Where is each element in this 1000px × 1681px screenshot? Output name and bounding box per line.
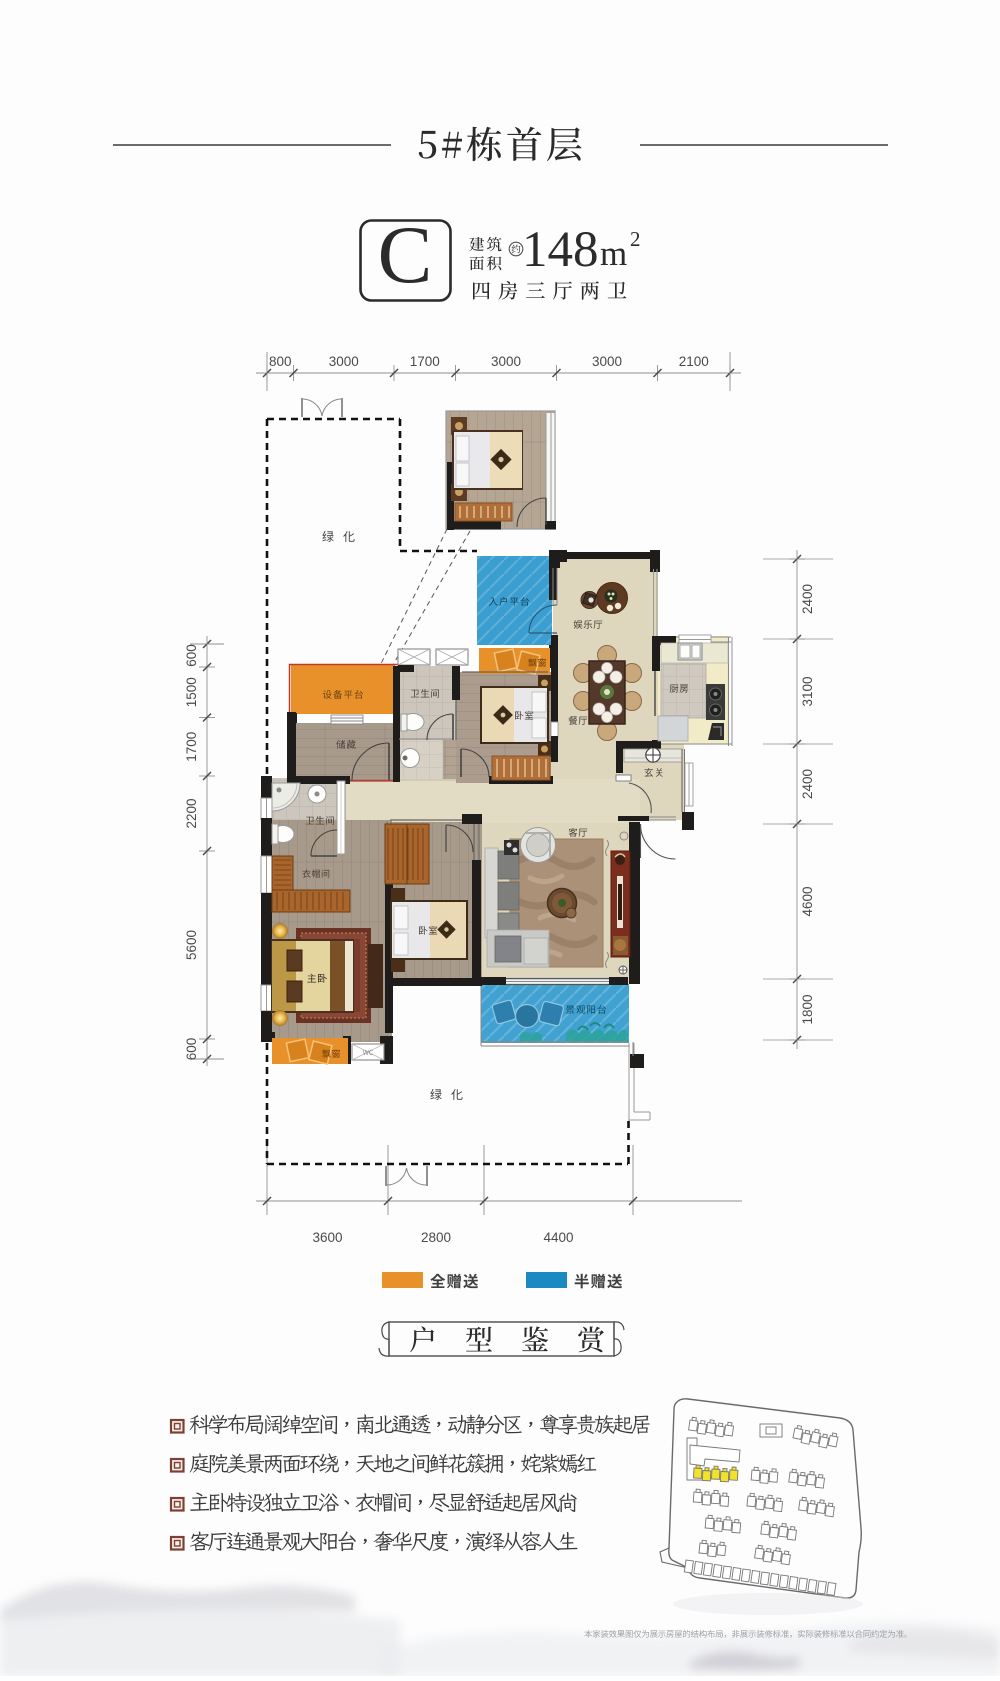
svg-text:5600: 5600 xyxy=(184,930,199,960)
svg-text:1700: 1700 xyxy=(410,354,440,369)
svg-text:3000: 3000 xyxy=(592,354,622,369)
svg-text:1500: 1500 xyxy=(184,677,199,707)
svg-text:3100: 3100 xyxy=(800,676,815,706)
svg-text:1700: 1700 xyxy=(184,732,199,762)
svg-text:2400: 2400 xyxy=(800,769,815,799)
svg-text:2800: 2800 xyxy=(421,1230,451,1245)
svg-text:2400: 2400 xyxy=(800,584,815,614)
svg-text:3000: 3000 xyxy=(491,354,521,369)
svg-text:600: 600 xyxy=(184,1038,199,1061)
svg-text:3600: 3600 xyxy=(312,1230,342,1245)
svg-text:3000: 3000 xyxy=(329,354,359,369)
svg-text:m: m xyxy=(600,234,627,273)
svg-text:4400: 4400 xyxy=(543,1230,573,1245)
svg-text:2100: 2100 xyxy=(679,354,709,369)
svg-text:C: C xyxy=(378,209,433,300)
svg-text:148: 148 xyxy=(522,222,599,278)
svg-text:2: 2 xyxy=(630,227,641,251)
svg-text:2200: 2200 xyxy=(184,798,199,828)
svg-text:800: 800 xyxy=(269,354,292,369)
svg-text:1800: 1800 xyxy=(800,994,815,1024)
svg-text:600: 600 xyxy=(184,644,199,667)
svg-text:4600: 4600 xyxy=(800,886,815,916)
